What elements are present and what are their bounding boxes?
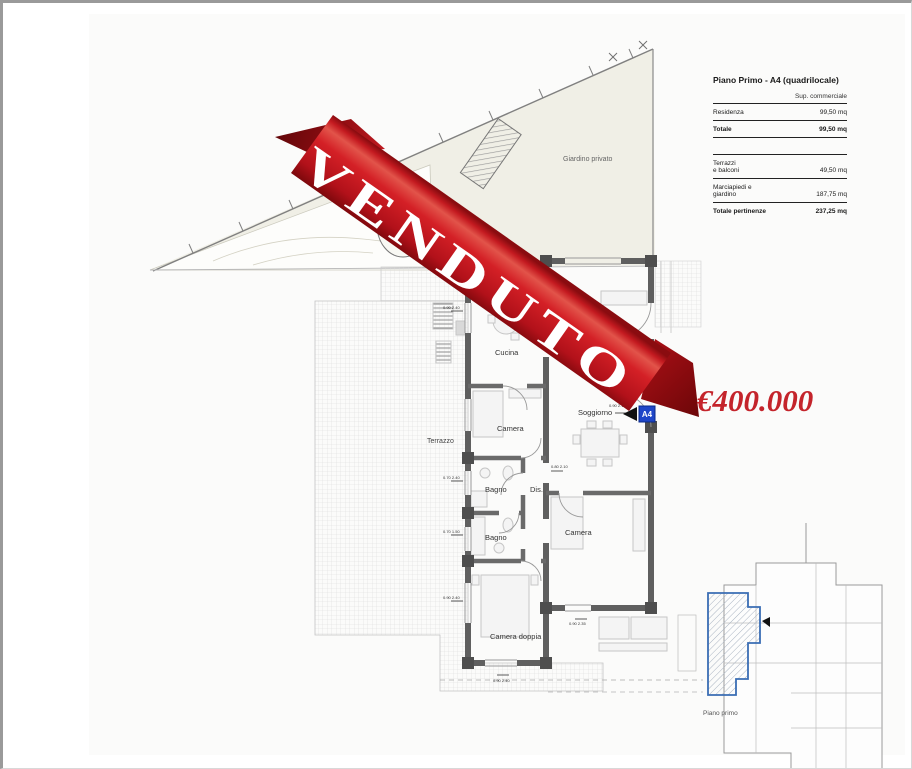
- room-label-camera-doppia: Camera doppia: [490, 632, 542, 641]
- table-row: Totale 99,50 mq: [713, 121, 847, 138]
- keymap-caption: Piano primo: [703, 710, 738, 717]
- row-label: Marciapiedi e giardino: [713, 184, 752, 198]
- svg-text:0.90 2.40: 0.90 2.40: [493, 678, 510, 683]
- surface-summary-table: Piano Primo - A4 (quadrilocale) Sup. com…: [713, 75, 847, 219]
- row-value: 99,50 mq: [820, 109, 847, 116]
- room-label-soggiorno: Soggiorno: [578, 408, 612, 417]
- table-row: Marciapiedi e giardino 187,75 mq: [713, 179, 847, 203]
- row-value: 187,75 mq: [816, 191, 847, 198]
- room-label-camera1: Camera: [497, 424, 525, 433]
- table-row: Totale pertinenze 237,25 mq: [713, 203, 847, 219]
- svg-text:0.90 2.40: 0.90 2.40: [443, 595, 460, 600]
- svg-text:0.70 1.50: 0.70 1.50: [443, 529, 460, 534]
- row-label: Terrazzi e balconi: [713, 160, 739, 174]
- room-label-camera2: Camera: [565, 528, 593, 537]
- table-title: Piano Primo - A4 (quadrilocale): [713, 75, 847, 85]
- table-spacer: [713, 138, 847, 155]
- room-label-bagno1: Bagno: [485, 485, 507, 494]
- room-label-bagno2: Bagno: [485, 533, 507, 542]
- row-value: 237,25 mq: [816, 208, 847, 215]
- floorplan-listing-image: Giardino privato Terrazzo: [0, 0, 912, 769]
- svg-text:0.90 2.40: 0.90 2.40: [443, 305, 460, 310]
- row-label: Totale: [713, 126, 732, 133]
- terrace-label: Terrazzo: [427, 438, 454, 445]
- unit-badge-label: A4: [642, 410, 653, 419]
- svg-text:0.80 2.10: 0.80 2.10: [551, 464, 568, 469]
- room-label-cucina: Cucina: [495, 348, 519, 357]
- svg-text:0.70 2.40: 0.70 2.40: [443, 475, 460, 480]
- price-label: €400.000: [697, 383, 867, 419]
- table-column-header: Sup. commerciale: [713, 93, 847, 104]
- table-row: Terrazzi e balconi 49,50 mq: [713, 155, 847, 179]
- table-row: Residenza 99,50 mq: [713, 104, 847, 121]
- row-label: Residenza: [713, 109, 744, 116]
- row-value: 49,50 mq: [820, 167, 847, 174]
- room-label-dis: Dis.: [530, 485, 543, 494]
- row-value: 99,50 mq: [819, 126, 847, 133]
- svg-text:0.90 2.35: 0.90 2.35: [569, 621, 586, 626]
- garden-label: Giardino privato: [563, 156, 613, 163]
- row-label: Totale pertinenze: [713, 208, 766, 215]
- key-map: [678, 523, 882, 769]
